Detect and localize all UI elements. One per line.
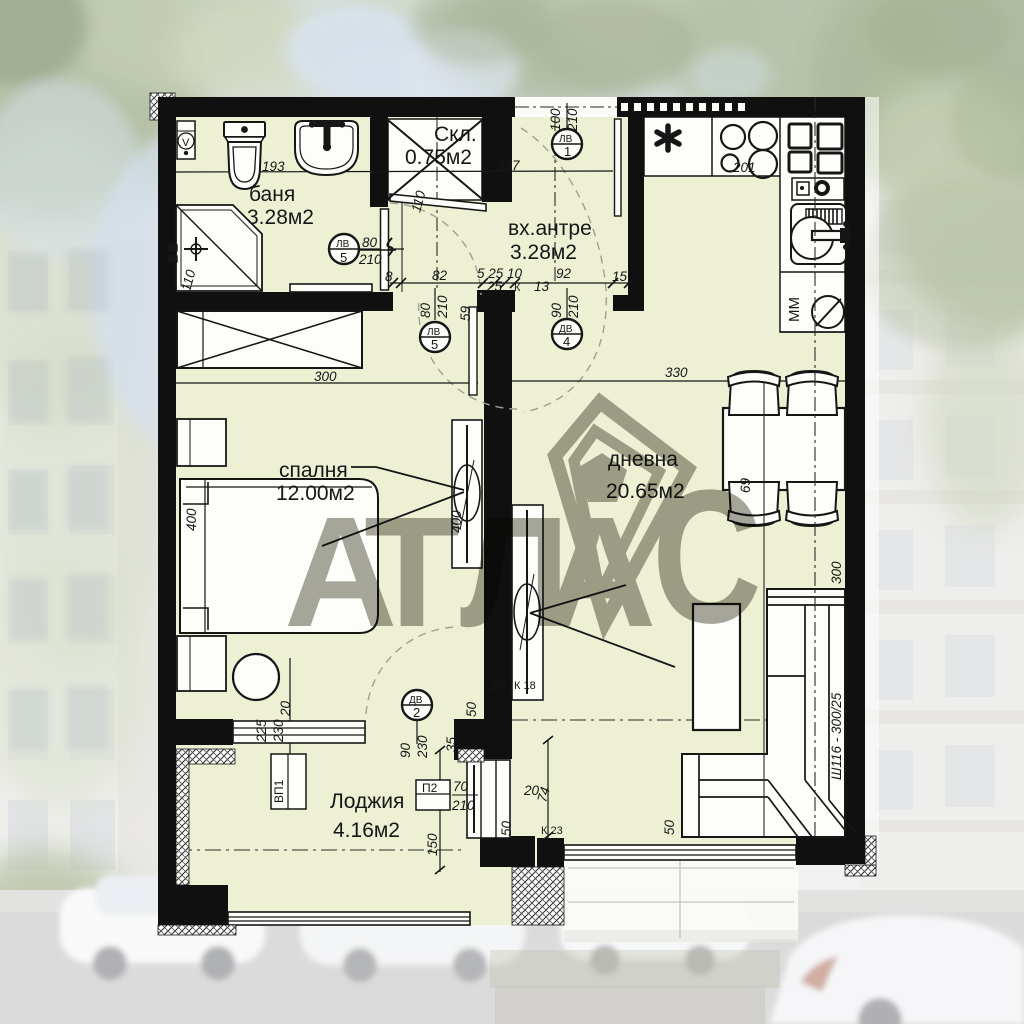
svg-text:90: 90 xyxy=(398,742,413,758)
svg-text:15: 15 xyxy=(612,269,628,284)
svg-text:35: 35 xyxy=(444,736,459,752)
svg-text:MM: MM xyxy=(786,297,803,322)
svg-text:Ш116 - 300/25: Ш116 - 300/25 xyxy=(829,692,844,780)
svg-text:90: 90 xyxy=(549,302,564,318)
svg-text:400: 400 xyxy=(184,508,199,531)
svg-text:210: 210 xyxy=(435,295,450,319)
svg-text:Лоджия: Лоджия xyxy=(330,790,404,813)
svg-text:2: 2 xyxy=(413,705,420,720)
svg-text:230: 230 xyxy=(271,719,286,743)
svg-text:К: К xyxy=(514,282,521,294)
svg-text:3.28м2: 3.28м2 xyxy=(510,241,577,264)
svg-text:4: 4 xyxy=(563,334,570,349)
svg-text:210: 210 xyxy=(566,295,581,319)
svg-text:20: 20 xyxy=(278,700,293,717)
svg-text:4.16м2: 4.16м2 xyxy=(333,819,400,842)
svg-text:50: 50 xyxy=(464,701,479,717)
svg-text:237: 237 xyxy=(496,158,520,173)
svg-text:80: 80 xyxy=(362,235,378,250)
svg-text:ВП1: ВП1 xyxy=(272,779,286,803)
svg-text:59: 59 xyxy=(458,305,473,321)
svg-text:25: 25 xyxy=(489,678,506,693)
svg-text:100: 100 xyxy=(548,108,563,131)
svg-text:210: 210 xyxy=(565,108,580,132)
svg-text:5: 5 xyxy=(340,250,347,265)
svg-text:П2: П2 xyxy=(422,781,438,795)
svg-text:баня: баня xyxy=(249,183,295,206)
svg-text:50: 50 xyxy=(662,819,677,835)
svg-text:5: 5 xyxy=(431,337,438,352)
svg-text:ЛВ: ЛВ xyxy=(336,239,350,250)
svg-text:201: 201 xyxy=(732,160,756,175)
svg-text:8: 8 xyxy=(385,269,393,284)
svg-text:210: 210 xyxy=(451,798,475,813)
svg-text:300: 300 xyxy=(829,561,844,584)
svg-text:150: 150 xyxy=(425,833,440,856)
svg-text:1: 1 xyxy=(564,144,571,159)
svg-text:Т: Т xyxy=(364,485,460,660)
svg-text:300: 300 xyxy=(314,369,337,384)
svg-text:0.75м2: 0.75м2 xyxy=(405,146,472,169)
svg-text:82: 82 xyxy=(432,268,448,283)
svg-text:230: 230 xyxy=(415,735,430,759)
svg-text:3.28м2: 3.28м2 xyxy=(247,206,314,229)
svg-text:70: 70 xyxy=(453,779,469,794)
svg-text:225: 225 xyxy=(254,719,269,743)
svg-text:92: 92 xyxy=(556,266,572,281)
svg-text:330: 330 xyxy=(665,365,688,380)
svg-text:193: 193 xyxy=(262,159,285,174)
svg-text:210: 210 xyxy=(358,252,382,267)
svg-text:спалня: спалня xyxy=(279,459,348,482)
svg-text:Скл.: Скл. xyxy=(434,123,477,146)
svg-text:С: С xyxy=(652,451,762,663)
svg-text:50: 50 xyxy=(499,820,514,836)
svg-text:13: 13 xyxy=(534,279,550,294)
svg-text:К 18: К 18 xyxy=(514,680,536,692)
svg-text:К 23: К 23 xyxy=(541,825,563,837)
svg-text:вх.антре: вх.антре xyxy=(508,217,592,240)
svg-text:V: V xyxy=(182,137,190,149)
svg-text:80: 80 xyxy=(418,302,433,318)
svg-text:25: 25 xyxy=(486,279,503,294)
